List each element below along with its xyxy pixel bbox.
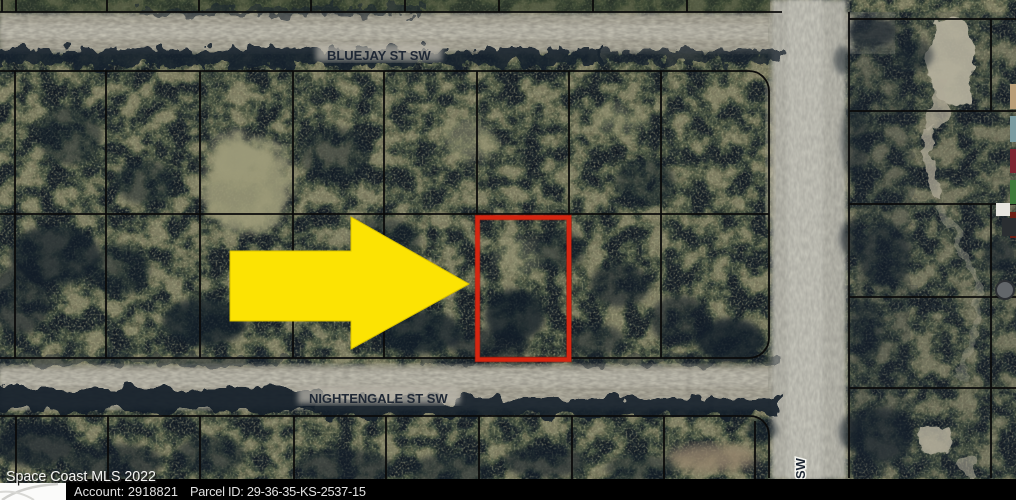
svg-text:Parcel ID: 29-36-35-KS-2537-15: Parcel ID: 29-36-35-KS-2537-15 <box>190 484 366 499</box>
svg-text:Account: 2918821: Account: 2918821 <box>74 484 178 499</box>
svg-text:NIGHTENGALE ST SW: NIGHTENGALE ST SW <box>309 391 448 406</box>
svg-text:BLUEJAY ST SW: BLUEJAY ST SW <box>327 48 431 63</box>
svg-text:SW: SW <box>793 457 808 479</box>
svg-text:Space Coast MLS 2022: Space Coast MLS 2022 <box>6 469 156 485</box>
